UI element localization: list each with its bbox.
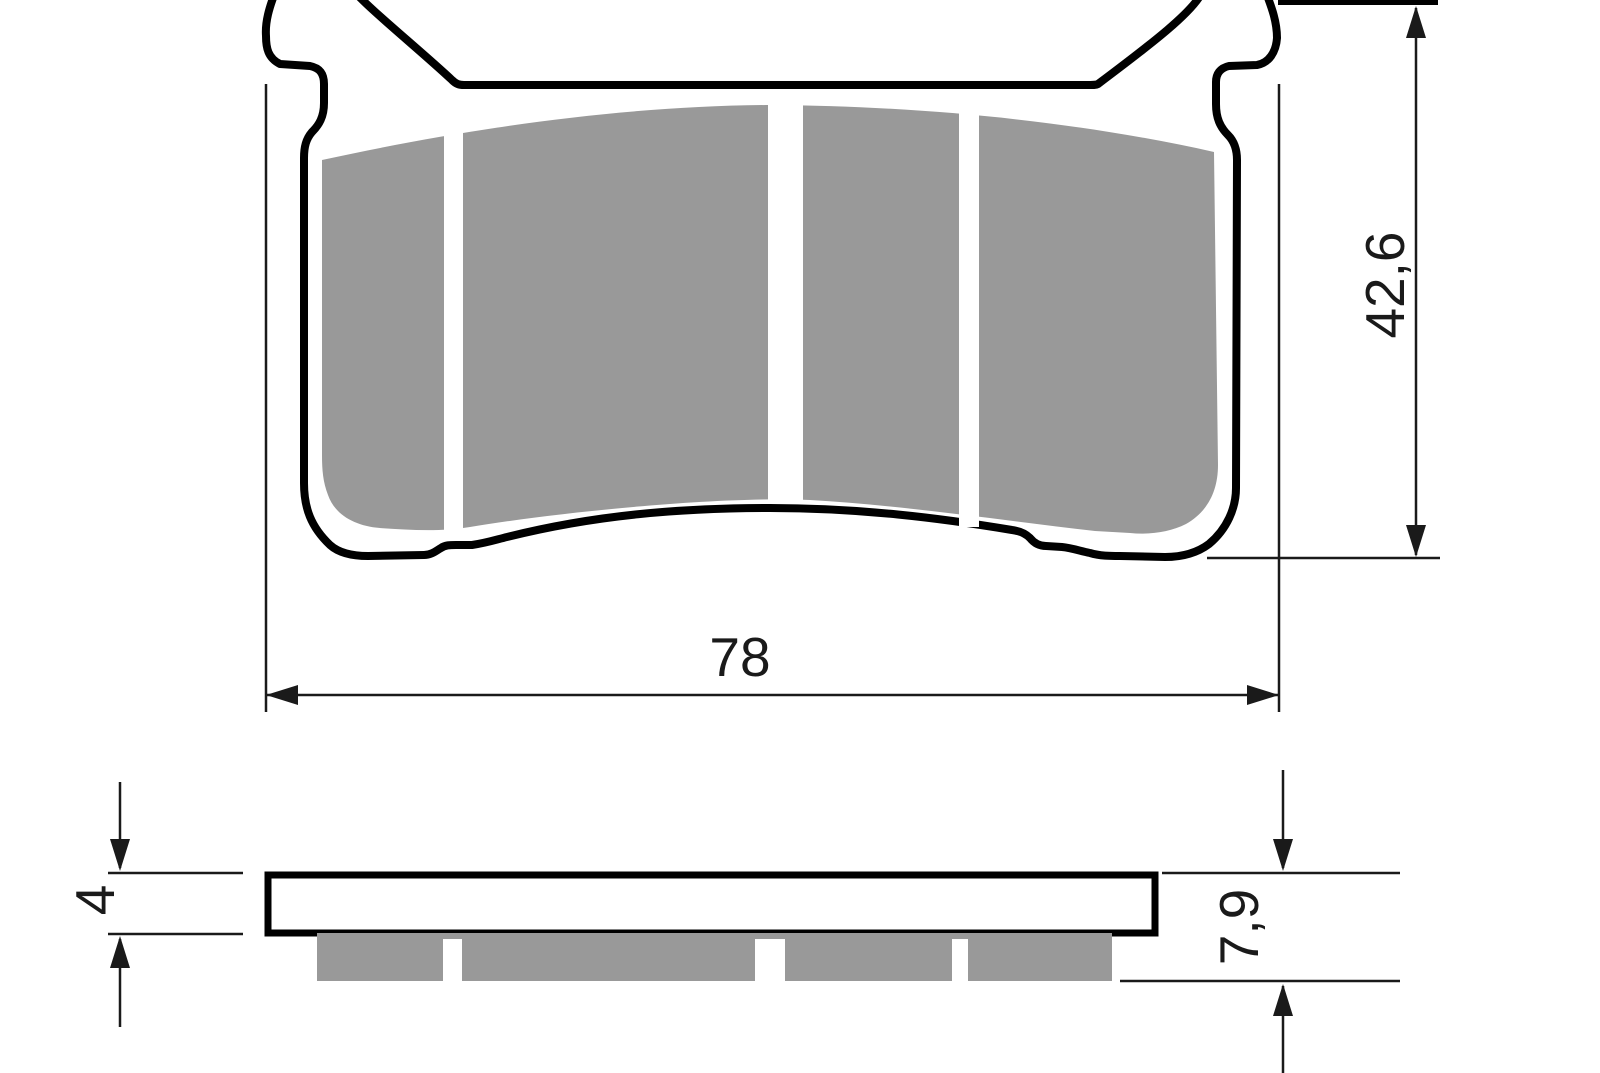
arrowhead-4-up [110,936,130,968]
friction-slot-right [959,103,979,527]
side-view: 4 7,9 [64,770,1400,1073]
dim-plate-thickness-label: 4 [64,885,126,916]
friction-slot-left [444,108,463,538]
front-view: 78 42,6 [266,0,1440,712]
side-slot-left [443,939,462,981]
arrowhead-79-down [1273,839,1293,871]
arrowhead-79-up [1273,984,1293,1016]
arrowhead-4-down [110,839,130,871]
side-slot-right [952,939,968,981]
brake-pad-drawing: 78 42,6 4 [0,0,1600,1073]
arrowhead-up [1406,6,1426,38]
dimension-total-thickness: 7,9 [1120,770,1400,1073]
friction-material-side [317,933,1112,981]
arrowhead-right [1247,685,1279,705]
arrowhead-left [266,685,298,705]
technical-drawing-canvas: 78 42,6 4 [0,0,1600,1073]
dim-width-label: 78 [709,626,770,688]
pad-backplate-side [268,875,1155,933]
arrowhead-down [1406,525,1426,557]
dimension-backplate-thickness: 4 [64,782,243,1027]
reference-tick-top [1278,0,1438,5]
dim-total-thickness-label: 7,9 [1208,889,1270,965]
dimension-height: 42,6 [1207,0,1440,558]
dim-height-label: 42,6 [1354,231,1416,338]
friction-slot-center [768,96,803,504]
side-slot-center [755,939,785,981]
